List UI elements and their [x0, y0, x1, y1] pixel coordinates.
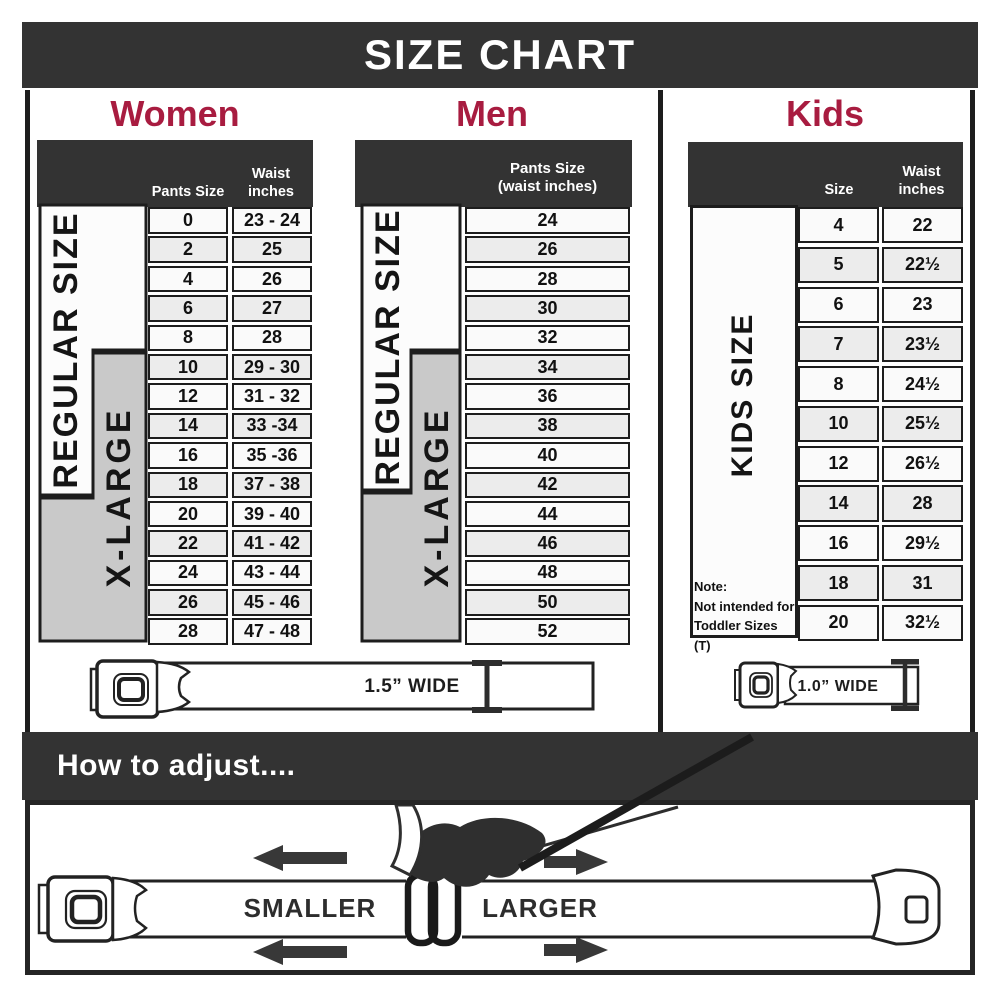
kids-size-cell: 5: [798, 247, 879, 283]
kids-heading: Kids: [705, 94, 945, 134]
women-waist-cell: 43 - 44: [232, 560, 312, 587]
women-table-row: 0 23 - 24: [148, 207, 312, 234]
men-table-row: 30: [465, 295, 630, 322]
men-pants-size-cell: 32: [465, 325, 630, 352]
women-waist-cell: 31 - 32: [232, 383, 312, 410]
women-waist-cell: 47 - 48: [232, 618, 312, 645]
women-xlarge-label: X-LARGE: [103, 347, 135, 647]
women-table-row: 24 43 - 44: [148, 560, 312, 587]
size-chart-page: SIZE CHART Women Men Kids Pants Size Wai…: [0, 0, 1000, 1000]
kids-size-cell: 14: [798, 485, 879, 521]
women-regular-size-label: REGULAR SIZE: [50, 200, 82, 500]
men-pants-size-cell: 30: [465, 295, 630, 322]
men-pants-size-cell: 26: [465, 236, 630, 263]
kids-size-cell: 18: [798, 565, 879, 601]
kids-col2-header: Waist inches: [880, 163, 963, 199]
kids-size-cell: 16: [798, 525, 879, 561]
men-table-row: 28: [465, 266, 630, 293]
men-table-row: 26: [465, 236, 630, 263]
kids-col1-header: Size: [798, 181, 880, 199]
men-table-row: 42: [465, 472, 630, 499]
hand-icon: [401, 818, 545, 887]
men-heading: Men: [372, 94, 612, 134]
women-waist-cell: 27: [232, 295, 312, 322]
kids-waist-cell: 23½: [882, 326, 963, 362]
main-box-right-border: [970, 90, 975, 732]
men-table-row: 46: [465, 530, 630, 557]
men-pants-size-cell: 38: [465, 413, 630, 440]
kids-size-cell: 12: [798, 446, 879, 482]
men-table-row: 32: [465, 325, 630, 352]
kids-waist-cell: 26½: [882, 446, 963, 482]
women-table-row: 14 33 -34: [148, 413, 312, 440]
women-waist-cell: 23 - 24: [232, 207, 312, 234]
women-table-row: 28 47 - 48: [148, 618, 312, 645]
kids-waist-cell: 31: [882, 565, 963, 601]
women-table-row: 8 28: [148, 325, 312, 352]
kids-size-label: KIDS SIZE: [727, 245, 759, 545]
women-waist-cell: 29 - 30: [232, 354, 312, 381]
women-table-row: 18 37 - 38: [148, 472, 312, 499]
women-col2-header: Waist inches: [230, 165, 312, 201]
men-table-row: 24: [465, 207, 630, 234]
men-pants-size-cell: 34: [465, 354, 630, 381]
men-pants-size-cell: 36: [465, 383, 630, 410]
kids-table-row: 12 26½: [798, 446, 963, 482]
men-regular-size-label: REGULAR SIZE: [372, 197, 404, 497]
men-kids-divider: [658, 90, 663, 732]
women-pants-size-cell: 24: [148, 560, 228, 587]
men-pants-size-cell: 48: [465, 560, 630, 587]
page-title: SIZE CHART: [22, 22, 978, 88]
kids-size-cell: 6: [798, 287, 879, 323]
women-waist-cell: 35 -36: [232, 442, 312, 469]
women-table-row: 12 31 - 32: [148, 383, 312, 410]
women-pants-size-cell: 2: [148, 236, 228, 263]
kids-waist-cell: 24½: [882, 366, 963, 402]
men-col-header: Pants Size (waist inches): [465, 160, 630, 196]
women-waist-cell: 41 - 42: [232, 530, 312, 557]
women-table-rows: 0 23 - 24 2 25 4 26 6 27 8 28 10 29 - 30…: [148, 207, 312, 645]
women-pants-size-cell: 22: [148, 530, 228, 557]
women-waist-cell: 28: [232, 325, 312, 352]
kids-waist-cell: 22½: [882, 247, 963, 283]
kids-waist-cell: 23: [882, 287, 963, 323]
kids-table-row: 8 24½: [798, 366, 963, 402]
kids-size-cell: 8: [798, 366, 879, 402]
kids-table-row: 10 25½: [798, 406, 963, 442]
adjust-belt-diagram: [30, 805, 970, 970]
women-pants-size-cell: 6: [148, 295, 228, 322]
arrow-right-bottom-icon: [544, 937, 608, 963]
women-waist-cell: 33 -34: [232, 413, 312, 440]
men-pants-size-cell: 28: [465, 266, 630, 293]
adjust-diagram-box: [25, 800, 975, 975]
women-table-row: 10 29 - 30: [148, 354, 312, 381]
men-table-row: 50: [465, 589, 630, 616]
kids-table-row: 7 23½: [798, 326, 963, 362]
women-table-row: 6 27: [148, 295, 312, 322]
how-to-adjust-heading: How to adjust....: [22, 732, 978, 800]
kids-size-cell: 10: [798, 406, 879, 442]
women-pants-size-cell: 12: [148, 383, 228, 410]
men-table-row: 38: [465, 413, 630, 440]
women-table-row: 20 39 - 40: [148, 501, 312, 528]
women-pants-size-cell: 4: [148, 266, 228, 293]
women-pants-size-cell: 0: [148, 207, 228, 234]
arrow-left-bottom-icon: [253, 939, 347, 965]
men-pants-size-cell: 24: [465, 207, 630, 234]
women-pants-size-cell: 28: [148, 618, 228, 645]
men-pants-size-cell: 40: [465, 442, 630, 469]
kids-table-rows: 4 22 5 22½ 6 23 7 23½ 8 24½ 10 25½ 12 26…: [798, 207, 963, 641]
men-pants-size-cell: 50: [465, 589, 630, 616]
men-table-row: 48: [465, 560, 630, 587]
kids-waist-cell: 32½: [882, 605, 963, 641]
women-pants-size-cell: 10: [148, 354, 228, 381]
women-pants-size-cell: 14: [148, 413, 228, 440]
smaller-label: SMALLER: [230, 893, 390, 924]
kids-belt-width-label: 1.0” WIDE: [768, 678, 908, 696]
men-table-row: 36: [465, 383, 630, 410]
men-table-row: 34: [465, 354, 630, 381]
adult-belt-width-label: 1.5” WIDE: [332, 676, 492, 698]
kids-waist-cell: 29½: [882, 525, 963, 561]
women-table-row: 22 41 - 42: [148, 530, 312, 557]
kids-note: Note: Not intended for Toddler Sizes (T): [694, 577, 796, 655]
women-pants-size-cell: 16: [148, 442, 228, 469]
women-waist-cell: 26: [232, 266, 312, 293]
women-table-row: 4 26: [148, 266, 312, 293]
men-table-row: 44: [465, 501, 630, 528]
women-col1-header: Pants Size: [148, 183, 228, 201]
kids-table-row: 5 22½: [798, 247, 963, 283]
adjust-belt-buckle-icon: [48, 877, 113, 941]
men-table-row: 40: [465, 442, 630, 469]
kids-waist-cell: 22: [882, 207, 963, 243]
kids-table-row: 16 29½: [798, 525, 963, 561]
kids-size-cell: 7: [798, 326, 879, 362]
kids-table-row: 4 22: [798, 207, 963, 243]
kids-waist-cell: 25½: [882, 406, 963, 442]
women-waist-cell: 45 - 46: [232, 589, 312, 616]
men-pants-size-cell: 44: [465, 501, 630, 528]
women-pants-size-cell: 18: [148, 472, 228, 499]
women-waist-cell: 37 - 38: [232, 472, 312, 499]
women-table-row: 16 35 -36: [148, 442, 312, 469]
kids-waist-cell: 28: [882, 485, 963, 521]
adult-belt-illustration: [40, 648, 610, 726]
women-pants-size-cell: 20: [148, 501, 228, 528]
men-table-row: 52: [465, 618, 630, 645]
larger-label: LARGER: [460, 893, 620, 924]
kids-table-row: 18 31: [798, 565, 963, 601]
men-xlarge-label: X-LARGE: [421, 347, 453, 647]
men-table-rows: 24 26 28 30 32 34 36 38 40 42 44 46 48 5…: [465, 207, 630, 645]
women-table-row: 26 45 - 46: [148, 589, 312, 616]
women-pants-size-cell: 8: [148, 325, 228, 352]
kids-size-cell: 20: [798, 605, 879, 641]
women-waist-cell: 39 - 40: [232, 501, 312, 528]
women-pants-size-cell: 26: [148, 589, 228, 616]
kids-size-cell: 4: [798, 207, 879, 243]
men-pants-size-cell: 42: [465, 472, 630, 499]
arrow-left-top-icon: [253, 845, 347, 871]
kids-table-row: 14 28: [798, 485, 963, 521]
kids-table-row: 20 32½: [798, 605, 963, 641]
kids-table-row: 6 23: [798, 287, 963, 323]
women-table-row: 2 25: [148, 236, 312, 263]
arrow-right-top-icon: [544, 849, 608, 875]
main-box-left-border: [25, 90, 30, 732]
women-heading: Women: [55, 94, 295, 134]
men-pants-size-cell: 46: [465, 530, 630, 557]
men-pants-size-cell: 52: [465, 618, 630, 645]
women-waist-cell: 25: [232, 236, 312, 263]
